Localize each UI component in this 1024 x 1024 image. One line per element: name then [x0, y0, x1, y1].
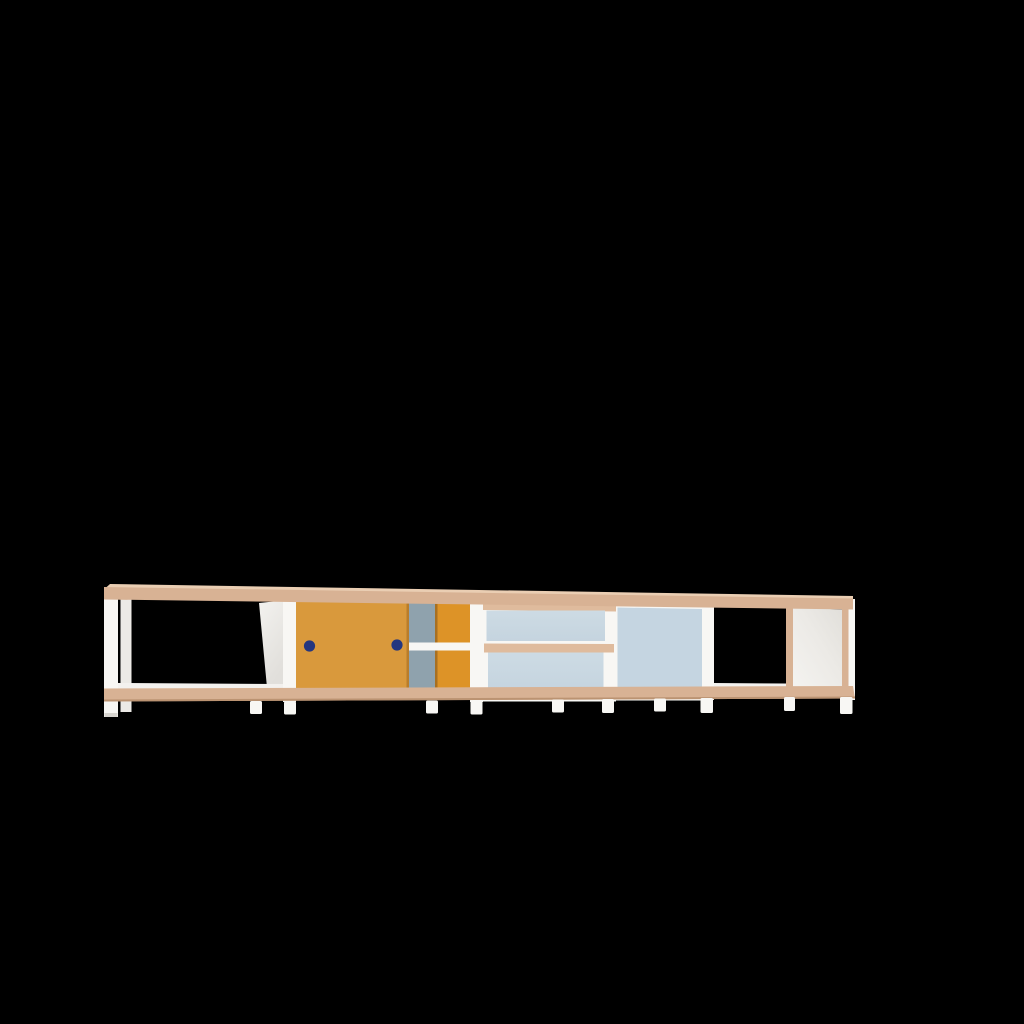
drawer-mid-rail	[484, 644, 614, 653]
blue-sliding-panel	[618, 608, 703, 692]
foot	[250, 701, 262, 714]
foot	[840, 697, 853, 714]
right-wood-divider	[786, 607, 793, 690]
foot	[654, 699, 666, 712]
foot	[284, 702, 296, 715]
door-handle-right	[391, 639, 402, 650]
section-sliding-door-cabinet	[296, 600, 470, 693]
foot	[426, 701, 438, 714]
foot	[784, 697, 795, 711]
right-end-wood-edge	[842, 599, 849, 700]
left-leg-foot-tip	[105, 713, 118, 717]
post-4	[702, 597, 714, 700]
foot	[602, 699, 614, 713]
product-render-canvas	[0, 0, 1024, 1024]
cabinet-interior	[409, 601, 470, 691]
foot	[471, 701, 483, 715]
drawer-upper	[487, 611, 606, 642]
right-end-white-edge	[849, 599, 856, 700]
front-door-edge	[407, 601, 410, 692]
middle-shelf	[409, 643, 470, 651]
post-2	[470, 594, 483, 703]
left-cube-divider-face	[259, 601, 283, 690]
door-handle-left	[304, 640, 315, 651]
section-right-open-cube	[714, 599, 855, 700]
post-1	[283, 591, 296, 702]
section-drawer-module	[483, 602, 616, 702]
section-blue-panel-bay	[616, 602, 702, 701]
sideboard-render	[0, 0, 1024, 1024]
right-end-panel-inner-face	[793, 608, 842, 689]
drawer-lower	[488, 653, 604, 691]
foot	[552, 700, 564, 713]
foot	[701, 698, 714, 713]
